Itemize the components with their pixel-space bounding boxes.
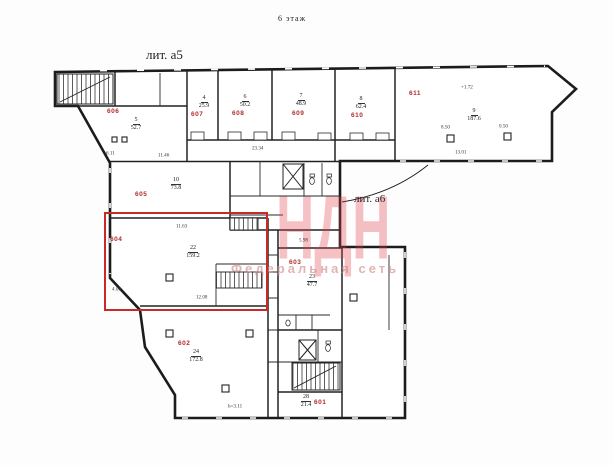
highlight-rect-604 (104, 212, 268, 311)
building-letter-a6: лит. а6 (354, 193, 385, 205)
floorplan-page: НДН Федеральная сеть 6 этаж лит. а5 лит.… (0, 0, 613, 465)
stairwell-top-icon (57, 74, 113, 104)
stairwell-bottom-icon (292, 363, 340, 390)
building-letter-a5: лит. а5 (146, 47, 183, 63)
elevator-icon (299, 340, 316, 360)
floor-title: 6 этаж (278, 14, 306, 23)
